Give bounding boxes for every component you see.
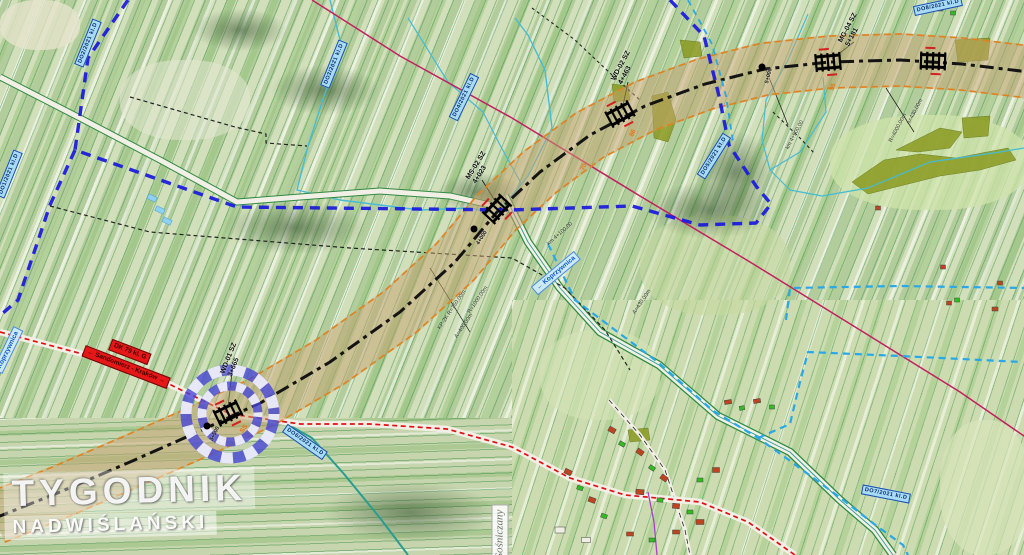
bridge-part: [821, 54, 823, 72]
olive-1: [680, 40, 702, 58]
building: [673, 530, 680, 534]
stream-2: [408, 18, 522, 185]
black-dash-3: [773, 112, 815, 154]
bridge-part: [939, 52, 940, 70]
building: [636, 448, 645, 456]
building: [582, 538, 591, 543]
building: [657, 498, 663, 503]
building: [588, 496, 596, 503]
building: [636, 489, 644, 495]
building: [947, 301, 952, 305]
violet-line: [648, 492, 657, 555]
km-marker-dot: [759, 64, 766, 71]
gmina-dash-1: [548, 244, 908, 555]
pond: [162, 217, 172, 225]
pond: [155, 206, 165, 214]
black-dash-4: [532, 8, 640, 100]
building: [687, 510, 693, 514]
building: [618, 441, 625, 447]
building: [649, 538, 655, 542]
bridge-part: [839, 52, 841, 70]
building: [696, 520, 704, 525]
building: [555, 527, 565, 533]
black-dash-1: [130, 97, 307, 146]
building: [739, 406, 745, 411]
building: [951, 11, 956, 15]
bridge-part: [927, 52, 928, 70]
building: [627, 532, 634, 536]
building: [724, 399, 732, 404]
bridge-part: [921, 52, 922, 70]
bridge-part: [945, 52, 946, 70]
building: [648, 465, 655, 472]
bridge-part: [827, 74, 837, 75]
building: [998, 281, 1003, 285]
north-road-fill: [0, 77, 490, 205]
building: [697, 478, 703, 482]
bridge-part: [933, 52, 934, 70]
leader-ann-2: [886, 88, 914, 132]
stream-teal: [287, 424, 408, 555]
km-marker-dot: [204, 423, 211, 430]
watermark: TYGODNIK NADWIŚLAŃSKI: [3, 467, 256, 541]
bridge-part: [827, 53, 829, 71]
building: [600, 513, 607, 519]
pond: [147, 194, 157, 202]
watermark-title: TYGODNIK: [3, 467, 255, 516]
building: [672, 503, 679, 509]
building: [576, 485, 583, 491]
olive-5: [852, 148, 1016, 194]
bridge-part: [815, 54, 817, 72]
olive-4: [962, 116, 990, 138]
km-marker-dot: [471, 226, 478, 233]
north-road-edge: [0, 77, 490, 205]
building: [941, 265, 946, 269]
bridge-part: [833, 53, 835, 71]
building: [608, 426, 617, 434]
bridge-part: [819, 49, 829, 50]
building: [955, 298, 960, 302]
building: [876, 206, 881, 210]
olive-6: [896, 128, 962, 152]
building: [713, 468, 720, 473]
building: [937, 7, 943, 11]
gmina-dash-3: [786, 286, 1024, 320]
building: [992, 307, 998, 311]
map-canvas: DO2/2021 kl.DDO3/2021 kl.DDO4/2021 kl.DD…: [0, 0, 1024, 555]
building: [770, 405, 775, 409]
boundary-blue-branch: [3, 150, 75, 313]
building: [753, 398, 761, 403]
gmina-dash-2: [758, 352, 1022, 438]
